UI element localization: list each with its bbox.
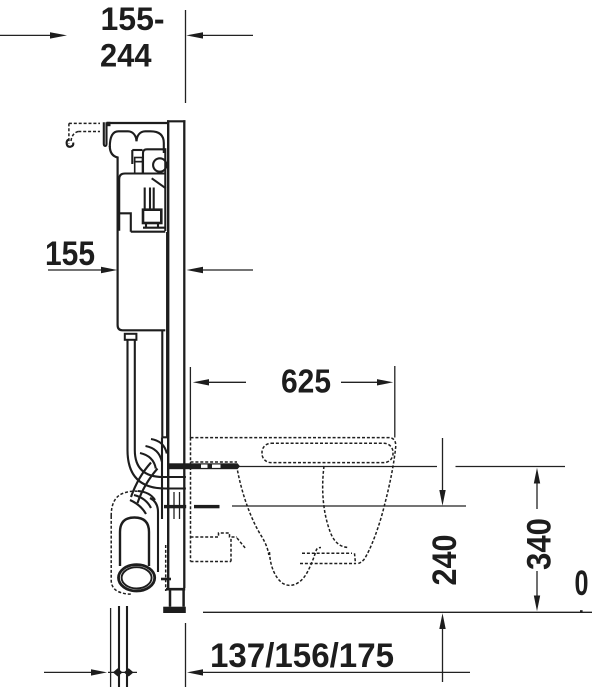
svg-text:625: 625: [281, 363, 331, 400]
svg-text:155: 155: [45, 235, 95, 273]
svg-text:240: 240: [426, 535, 464, 586]
svg-text:340: 340: [521, 518, 559, 570]
svg-text:244: 244: [100, 38, 152, 74]
svg-text:155-: 155-: [101, 1, 165, 37]
svg-text:0: 0: [575, 563, 589, 603]
svg-text:137/156/175: 137/156/175: [210, 637, 394, 675]
